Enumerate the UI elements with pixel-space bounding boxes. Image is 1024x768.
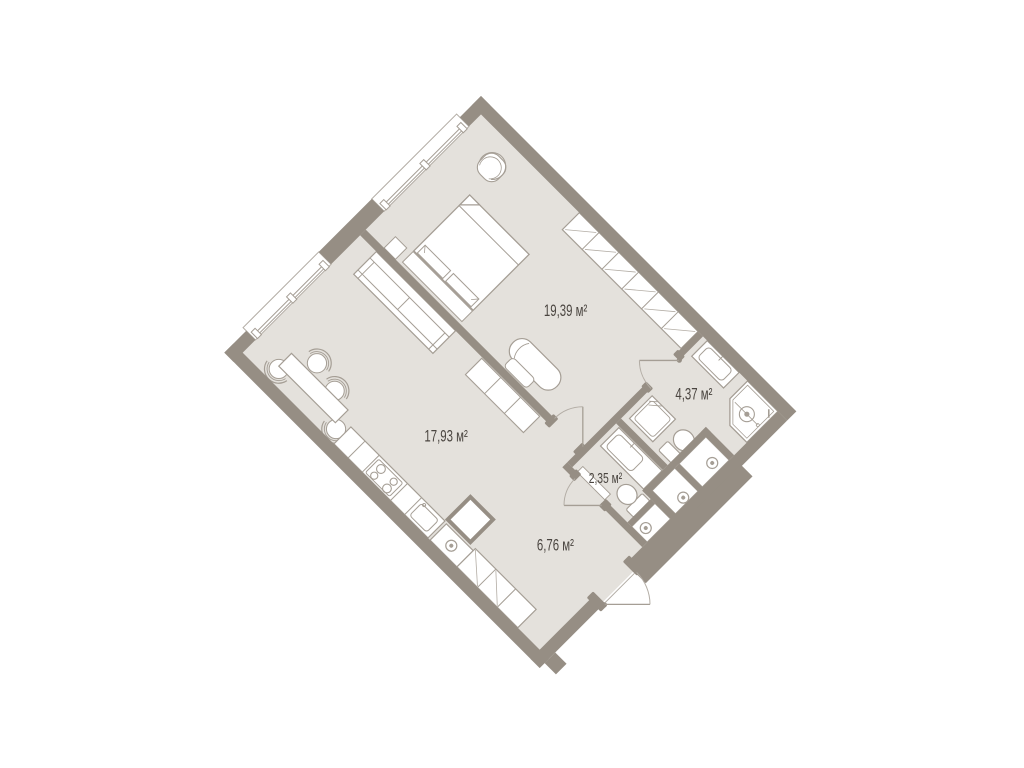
svg-text:6,76 м²: 6,76 м² — [537, 536, 574, 555]
svg-text:4,37 м²: 4,37 м² — [675, 386, 712, 405]
svg-text:2,35 м²: 2,35 м² — [589, 469, 623, 487]
svg-text:19,39 м²: 19,39 м² — [544, 302, 588, 321]
svg-text:17,93 м²: 17,93 м² — [424, 427, 468, 446]
